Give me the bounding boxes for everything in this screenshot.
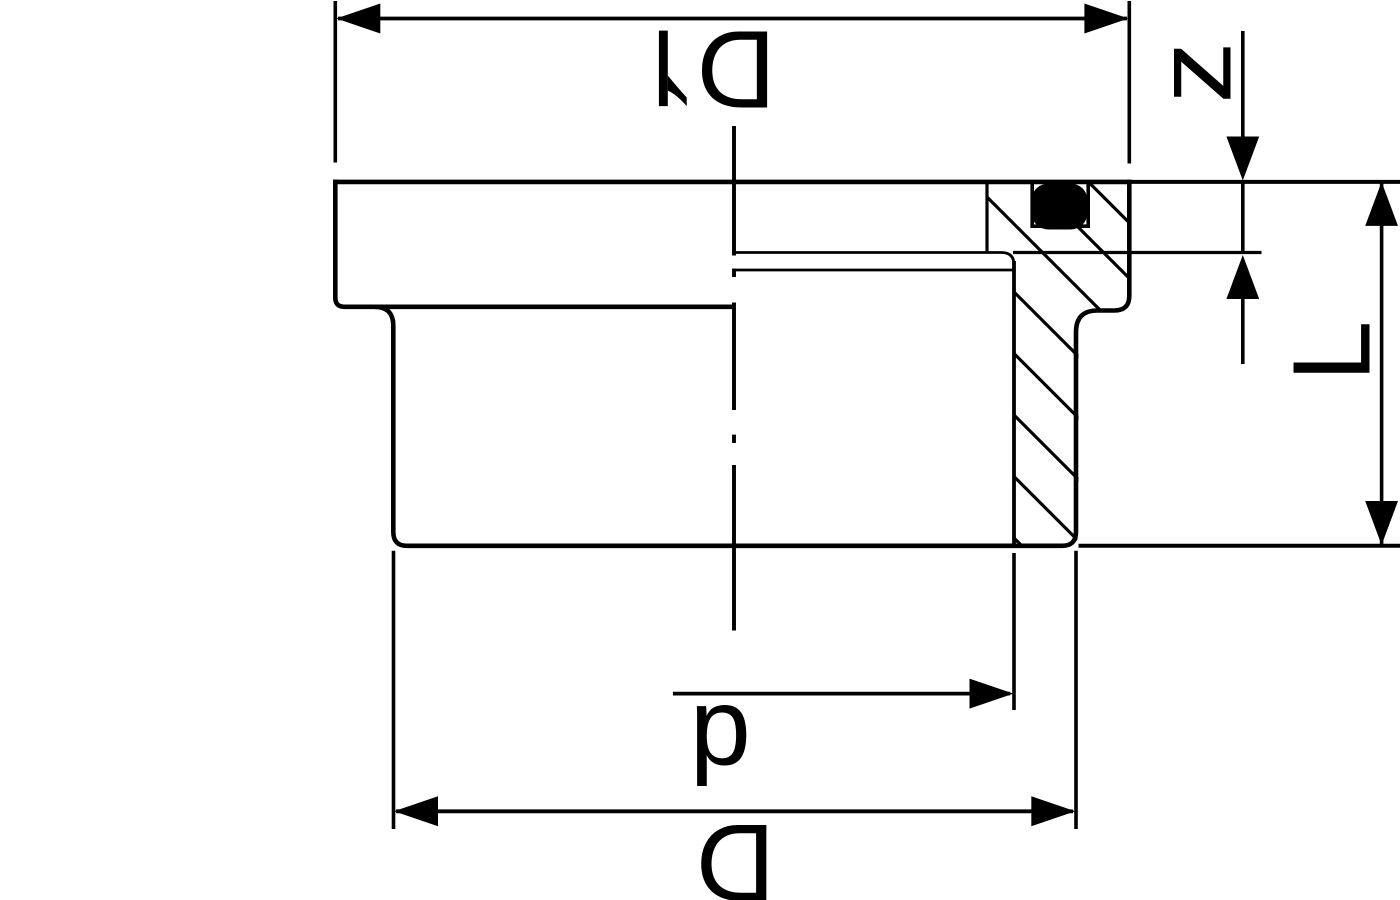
svg-text:z: z — [1134, 41, 1253, 104]
svg-text:D: D — [697, 8, 776, 131]
svg-text:L: L — [1270, 321, 1393, 382]
svg-text:D: D — [696, 801, 775, 900]
svg-text:d: d — [690, 682, 751, 805]
